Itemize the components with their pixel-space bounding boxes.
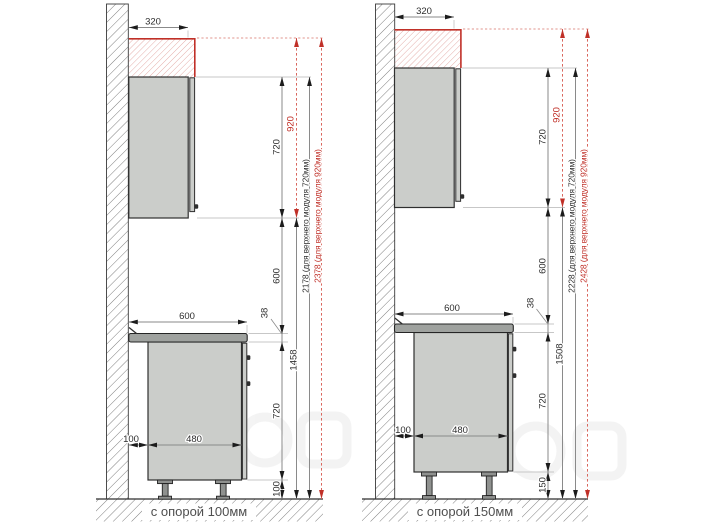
- drawing-canvas: 320 600 100 480 720 600 38 720 100 920 1…: [0, 0, 702, 523]
- dim-gap: 600: [538, 258, 549, 274]
- dim-depth: 320: [145, 17, 161, 28]
- dim-leg-height: 150: [538, 477, 549, 493]
- dim-base-height: 720: [538, 393, 549, 409]
- upper-cabinet: [395, 68, 455, 208]
- dim-gap: 600: [272, 268, 283, 284]
- caption: с опорой 150мм: [417, 504, 514, 519]
- dim-base-height: 720: [272, 403, 283, 419]
- wall-hatch-left: [107, 4, 129, 499]
- dim-counter-width: 600: [444, 303, 460, 314]
- drawer-handle: [513, 347, 516, 351]
- countertop: [395, 324, 514, 333]
- dim-upper-height: 720: [538, 129, 549, 145]
- wall-hatch-right: [376, 4, 395, 499]
- dim-counter-thickness: 38: [260, 308, 271, 319]
- drawer-handle: [247, 356, 250, 360]
- caption: с опорой 100мм: [151, 504, 248, 519]
- dim-counter-thickness: 38: [526, 298, 537, 309]
- upper-module-920-zone: [395, 29, 462, 68]
- dim-total-720: 2228 (для верхнего модуля 720мм): [566, 159, 576, 293]
- base-cabinet-front: [242, 343, 246, 479]
- cabinet-legs: [158, 480, 231, 499]
- upper-cabinet-door: [456, 69, 461, 202]
- dim-wall-offset: 100: [395, 425, 411, 436]
- dim-leg-height: 100: [272, 481, 283, 497]
- dim-floor-to-upper: 1508: [555, 343, 566, 364]
- drawer-handle: [247, 382, 250, 386]
- upper-module-920-zone: [129, 38, 196, 77]
- dim-wall-offset: 100: [123, 434, 139, 445]
- upper-door-handle: [461, 195, 464, 199]
- cabinet-legs: [422, 472, 497, 499]
- dim-total-720: 2178 (для верхнего модуля 720мм): [300, 159, 310, 293]
- base-cabinet: [414, 333, 508, 473]
- countertop: [129, 334, 247, 343]
- dim-body-width: 480: [186, 434, 202, 445]
- upper-door-handle: [195, 205, 198, 209]
- drawer-handle: [513, 374, 516, 378]
- countertop-back-edge: [129, 328, 137, 334]
- countertop-back-edge: [395, 318, 403, 324]
- dim-body-width: 480: [452, 425, 468, 436]
- upper-cabinet-door: [190, 78, 195, 212]
- dim-depth: 320: [416, 6, 432, 17]
- base-cabinet: [148, 342, 242, 480]
- dim-counter-width: 600: [179, 311, 195, 322]
- dim-upper-height-alt: 920: [286, 116, 297, 132]
- dim-upper-height: 720: [272, 139, 283, 155]
- dim-upper-height-alt: 920: [552, 107, 563, 123]
- base-cabinet-front: [508, 334, 512, 471]
- upper-cabinet: [129, 77, 188, 218]
- dim-total-920: 2428 (для верхнего модуля 920мм): [578, 149, 588, 283]
- dim-total-920: 2378 (для верхнего модуля 920мм): [312, 149, 322, 283]
- dim-floor-to-upper: 1458: [289, 349, 300, 370]
- kitchen-mounting-diagram: 320 600 100 480 720 600 38 720 100 920 1…: [0, 0, 702, 523]
